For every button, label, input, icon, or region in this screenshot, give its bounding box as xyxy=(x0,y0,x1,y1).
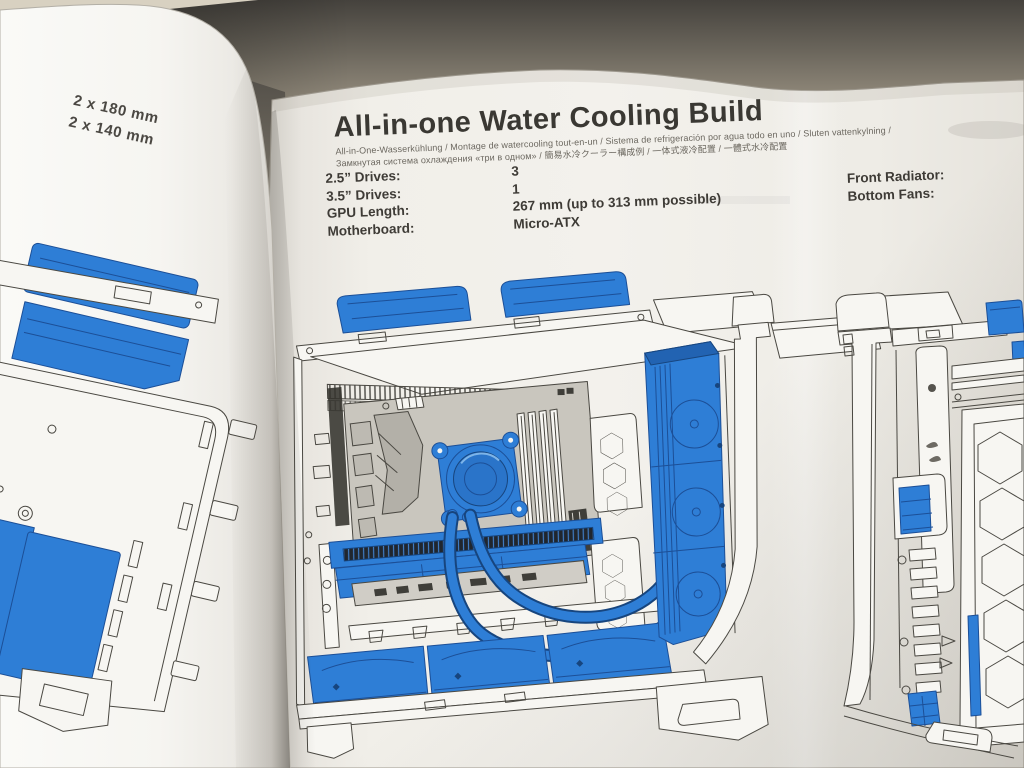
spec-label-bottom-fans: Bottom Fans: xyxy=(847,184,945,206)
spec-value: Micro-ATX xyxy=(513,213,580,233)
right-spec-labels: Front Radiator: Bottom Fans: xyxy=(847,166,946,206)
latch-block xyxy=(899,485,931,534)
main-page-text: All-in-one Water Cooling Build All-in-On… xyxy=(270,59,1024,288)
spec-value: 3 xyxy=(511,163,519,181)
manual-page-photo: 2 x 180 mm 2 x 140 mm All-in-one Water C… xyxy=(0,0,1024,768)
hex-bracket-upper xyxy=(590,413,642,512)
spec-value: 1 xyxy=(512,180,520,198)
front-radiator xyxy=(644,341,728,645)
illustration-right-case xyxy=(836,292,1024,758)
spec-table: 2.5” Drives: 3 3.5” Drives: 1 GPU Length… xyxy=(325,155,722,240)
top-fan-corner xyxy=(986,300,1024,335)
aio-pump-block xyxy=(431,432,527,527)
hex-vent-panel xyxy=(960,404,1024,746)
